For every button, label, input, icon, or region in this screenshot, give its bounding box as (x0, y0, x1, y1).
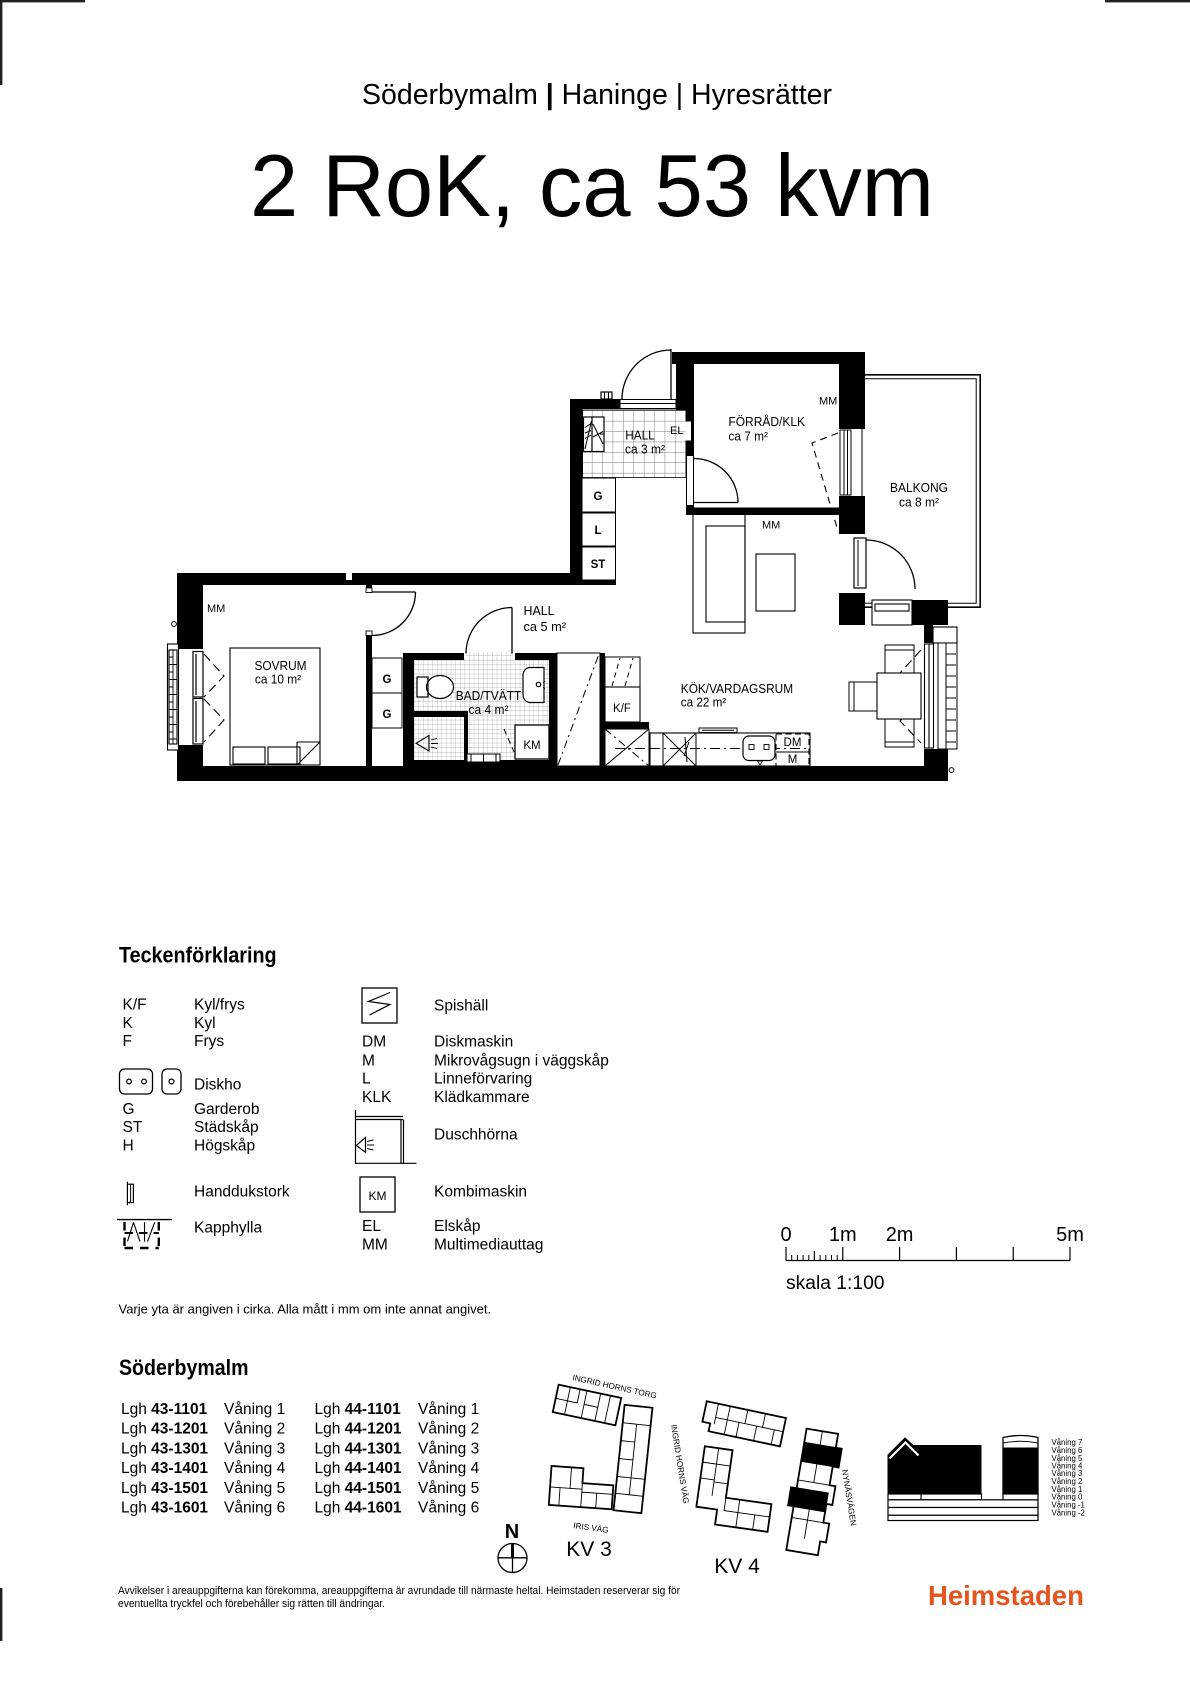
svg-text:Lgh 43-1401: Lgh 43-1401 (121, 1460, 208, 1477)
svg-text:DM: DM (362, 1033, 386, 1050)
svg-text:F: F (123, 1033, 132, 1050)
svg-text:KM: KM (523, 740, 540, 752)
svg-text:Lgh 44-1301: Lgh 44-1301 (315, 1440, 402, 1457)
svg-text:eventuellta tryckfel och föreb: eventuellta tryckfel och förebehåller si… (118, 1598, 385, 1610)
svg-text:Linneförvaring: Linneförvaring (434, 1071, 532, 1088)
svg-text:KV 3: KV 3 (566, 1538, 612, 1561)
svg-text:Lgh 43-1201: Lgh 43-1201 (121, 1421, 208, 1438)
svg-text:M: M (788, 754, 798, 766)
svg-text:EL: EL (670, 425, 683, 437)
svg-text:ca 3 m²: ca 3 m² (625, 442, 666, 457)
svg-text:Kombimaskin: Kombimaskin (434, 1184, 527, 1201)
svg-text:K: K (123, 1015, 134, 1032)
svg-text:Varje yta är angiven i cirka.: Varje yta är angiven i cirka. Alla mått … (119, 1302, 492, 1317)
svg-text:1m: 1m (829, 1224, 857, 1246)
svg-text:MM: MM (362, 1236, 388, 1253)
svg-text:Mikrovågsugn i väggskåp: Mikrovågsugn i väggskåp (434, 1052, 609, 1069)
svg-text:Lgh 43-1101: Lgh 43-1101 (121, 1401, 208, 1418)
svg-text:Kyl/frys: Kyl/frys (194, 997, 245, 1014)
svg-text:ca 22 m²: ca 22 m² (681, 695, 727, 710)
svg-text:Våning 2: Våning 2 (224, 1421, 285, 1438)
svg-text:Våning 5: Våning 5 (224, 1480, 285, 1497)
svg-text:N: N (505, 1521, 519, 1543)
svg-text:Våning 5: Våning 5 (418, 1480, 479, 1497)
svg-text:Duschhörna: Duschhörna (434, 1127, 518, 1144)
svg-text:G: G (594, 491, 603, 503)
svg-text:Lgh 44-1201: Lgh 44-1201 (315, 1421, 402, 1438)
svg-text:ca 7 m²: ca 7 m² (728, 429, 768, 444)
svg-text:Lgh 43-1501: Lgh 43-1501 (121, 1480, 208, 1497)
svg-text:2 RoK, ca 53 kvm: 2 RoK, ca 53 kvm (250, 136, 934, 235)
svg-text:Garderob: Garderob (194, 1101, 259, 1118)
svg-text:ST: ST (123, 1119, 143, 1136)
svg-text:5m: 5m (1056, 1224, 1084, 1246)
svg-text:skala 1:100: skala 1:100 (786, 1273, 885, 1294)
svg-text:Spishäll: Spishäll (434, 998, 488, 1015)
svg-text:IRIS VÄG: IRIS VÄG (573, 1520, 610, 1535)
svg-text:Diskmaskin: Diskmaskin (434, 1033, 513, 1050)
svg-text:Högskåp: Högskåp (194, 1138, 255, 1155)
svg-text:Kapphylla: Kapphylla (194, 1220, 262, 1237)
svg-text:Diskho: Diskho (194, 1077, 241, 1094)
svg-text:ST: ST (591, 559, 606, 571)
svg-text:ca 4 m²: ca 4 m² (469, 702, 510, 717)
svg-text:KLK: KLK (362, 1089, 392, 1106)
svg-text:Våning 4: Våning 4 (224, 1460, 286, 1477)
svg-text:MM: MM (207, 603, 225, 615)
svg-text:Lgh 43-1601: Lgh 43-1601 (121, 1500, 208, 1517)
svg-text:Lgh 43-1301: Lgh 43-1301 (121, 1440, 208, 1457)
svg-text:Våning 6: Våning 6 (418, 1500, 479, 1517)
svg-text:G: G (123, 1101, 135, 1118)
svg-text:Lgh 44-1401: Lgh 44-1401 (315, 1460, 402, 1477)
svg-text:G: G (383, 709, 392, 721)
svg-text:Lgh 44-1501: Lgh 44-1501 (315, 1480, 402, 1497)
svg-text:Heimstaden: Heimstaden (928, 1580, 1084, 1611)
svg-text:Lgh 44-1101: Lgh 44-1101 (315, 1401, 402, 1418)
svg-text:EL: EL (362, 1218, 381, 1235)
svg-text:L: L (594, 525, 601, 537)
svg-text:M: M (362, 1052, 375, 1069)
svg-text:Söderbymalm | Haninge | Hyresr: Söderbymalm | Haninge | Hyresrätter (362, 79, 832, 111)
svg-text:ca 5 m²: ca 5 m² (524, 619, 567, 634)
svg-text:Teckenförklaring: Teckenförklaring (119, 943, 277, 968)
svg-text:MM: MM (819, 396, 837, 408)
svg-text:NYNÄSVÄGEN: NYNÄSVÄGEN (840, 1469, 859, 1527)
svg-text:L: L (362, 1071, 371, 1088)
svg-text:Multimediauttag: Multimediauttag (434, 1236, 543, 1253)
svg-text:H: H (123, 1138, 134, 1155)
svg-text:BALKONG: BALKONG (890, 480, 948, 495)
svg-text:Våning 3: Våning 3 (224, 1440, 285, 1457)
svg-text:G: G (383, 674, 392, 686)
svg-text:K/F: K/F (613, 703, 631, 715)
svg-text:INGRID HORNS VÄG: INGRID HORNS VÄG (669, 1424, 691, 1505)
svg-text:ca 8 m²: ca 8 m² (899, 495, 940, 510)
svg-text:Våning 6: Våning 6 (224, 1500, 285, 1517)
svg-text:Våning 3: Våning 3 (418, 1440, 479, 1457)
svg-text:2m: 2m (886, 1224, 914, 1246)
svg-text:Våning 1: Våning 1 (224, 1401, 285, 1418)
svg-text:HALL: HALL (524, 603, 555, 618)
svg-text:Våning -2: Våning -2 (1052, 1508, 1085, 1517)
svg-text:Frys: Frys (194, 1033, 224, 1050)
svg-text:Avvikelser i areauppgifterna k: Avvikelser i areauppgifterna kan förekom… (118, 1585, 680, 1597)
svg-text:DM: DM (784, 737, 802, 749)
svg-text:BAD/TVÄTT: BAD/TVÄTT (456, 688, 522, 703)
svg-text:KV 4: KV 4 (714, 1555, 760, 1578)
svg-text:HALL: HALL (625, 428, 655, 443)
svg-text:MM: MM (762, 520, 780, 532)
svg-text:K/F: K/F (123, 997, 147, 1014)
svg-text:Våning 4: Våning 4 (418, 1460, 480, 1477)
svg-text:0: 0 (780, 1224, 791, 1246)
svg-text:Våning 2: Våning 2 (418, 1421, 479, 1438)
svg-text:KM: KM (369, 1189, 387, 1203)
svg-text:Elskåp: Elskåp (434, 1218, 481, 1235)
svg-text:Kyl: Kyl (194, 1015, 216, 1032)
svg-text:Klädkammare: Klädkammare (434, 1089, 530, 1106)
svg-text:Handdukstork: Handdukstork (194, 1184, 290, 1201)
svg-text:Städskåp: Städskåp (194, 1119, 259, 1136)
svg-text:Våning 1: Våning 1 (418, 1401, 479, 1418)
svg-text:Söderbymalm: Söderbymalm (119, 1355, 249, 1380)
svg-text:Lgh 44-1601: Lgh 44-1601 (315, 1500, 402, 1517)
svg-text:FÖRRÅD/KLK: FÖRRÅD/KLK (728, 414, 805, 429)
